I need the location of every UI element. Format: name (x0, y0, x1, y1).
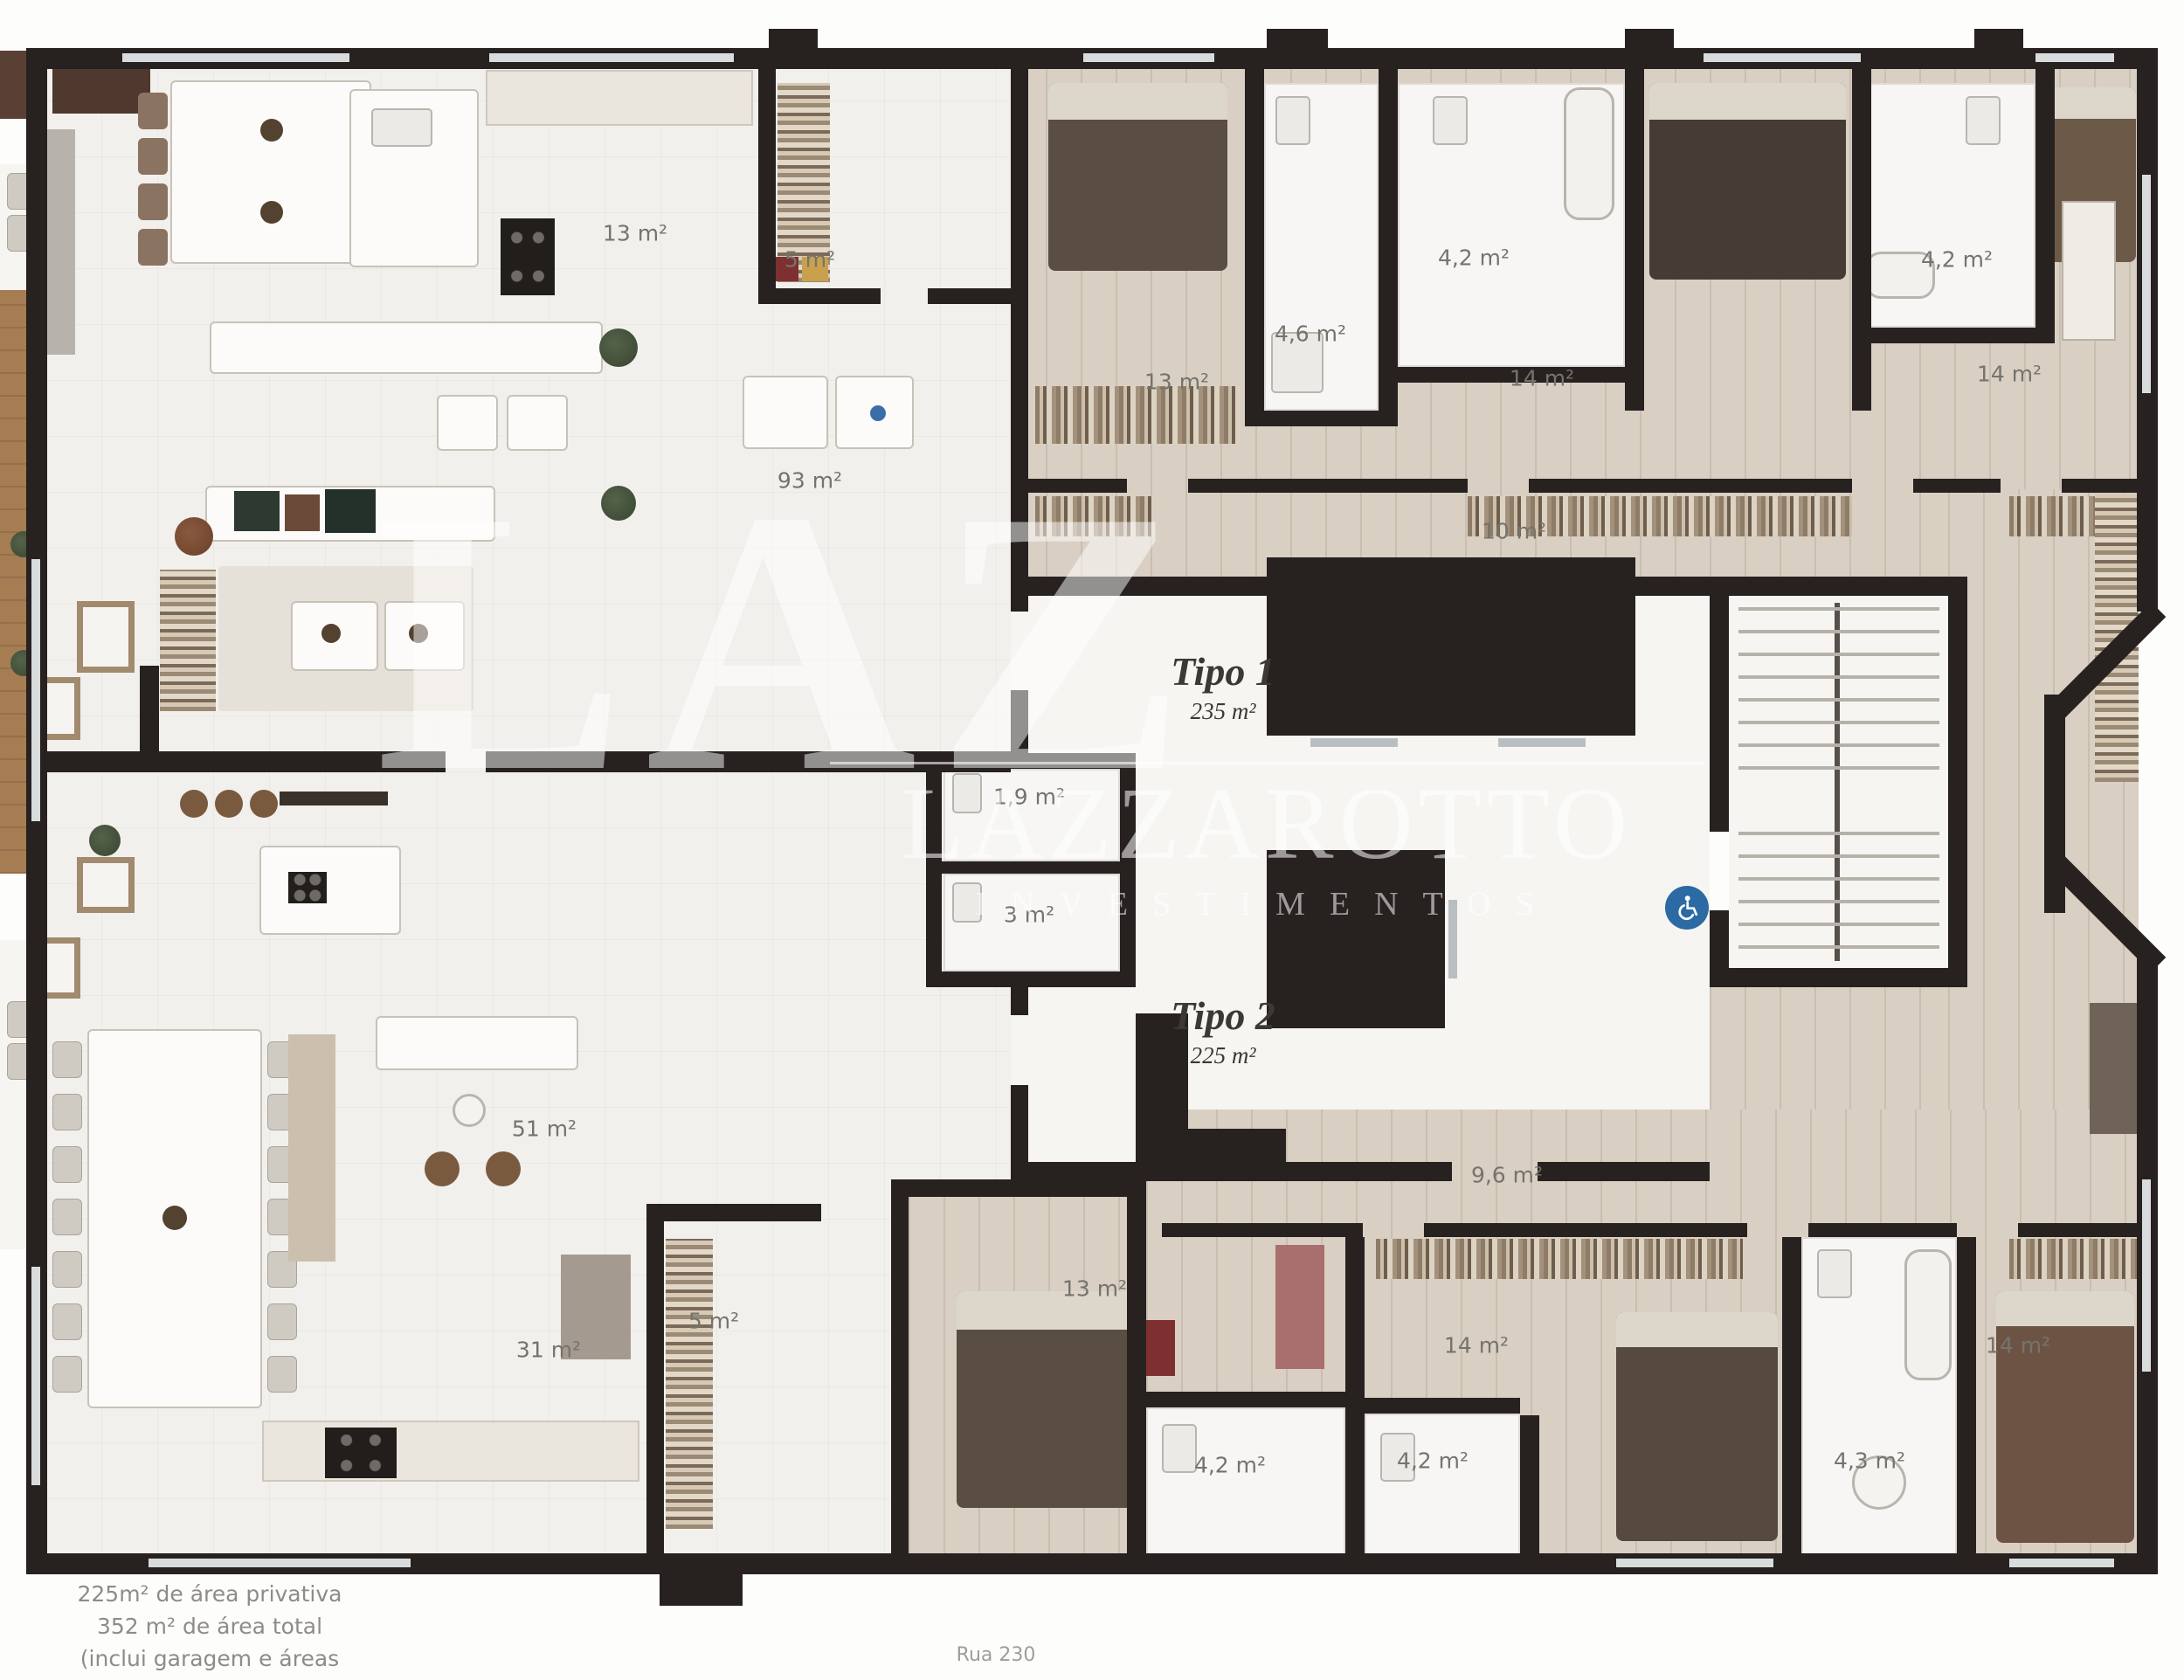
wall-segment (926, 753, 1136, 769)
wall-segment (2035, 67, 2055, 343)
wall-segment (1162, 1223, 1363, 1237)
wall-segment (1188, 479, 1468, 493)
stair-tread (1738, 675, 1939, 679)
room-area-label: 14 m² (1510, 366, 1574, 391)
wall-segment (1245, 67, 1264, 411)
wall-segment (1245, 411, 1398, 426)
wall-segment (1957, 1237, 1976, 1555)
bathtub (1904, 1249, 1952, 1380)
wall-segment (1127, 1197, 1146, 1555)
bath-fixture (1433, 96, 1468, 145)
bed-pillows (1048, 83, 1227, 120)
chair (52, 1199, 82, 1235)
room-area-label: 4,2 m² (1438, 245, 1510, 271)
bath-fixture (371, 108, 432, 147)
stair-tread (1738, 698, 1939, 702)
cabinet (0, 51, 26, 119)
wall-segment (1365, 1398, 1520, 1414)
coffee-table (507, 395, 568, 451)
chair (52, 1094, 82, 1130)
room-area-label: 51 m² (512, 1117, 577, 1142)
wall-segment (1529, 479, 1852, 493)
chair (267, 1303, 297, 1340)
chair (52, 1303, 82, 1340)
chair (267, 1356, 297, 1393)
unit-name: Tipo 1 (1118, 648, 1328, 695)
cabinet (288, 1034, 335, 1262)
wall-segment (1120, 753, 1136, 987)
cabinet (285, 494, 320, 531)
room-area-label: 9,6 m² (1471, 1163, 1543, 1188)
cooktop (501, 218, 555, 295)
wall-segment (660, 1573, 743, 1606)
area-summary: 225m² de área privativa 352 m² de área t… (35, 1578, 384, 1680)
wall-segment (140, 666, 159, 753)
bath-fixture (952, 773, 982, 813)
stair-tread (1738, 832, 1939, 835)
plant (175, 517, 213, 556)
wall-segment (891, 1179, 909, 1555)
decor-item (260, 201, 283, 224)
stair-tread (1738, 721, 1939, 724)
window (122, 53, 349, 62)
wall-segment (1345, 1237, 1365, 1555)
bed-pillows (2044, 87, 2136, 119)
window (1704, 53, 1861, 62)
chair (138, 229, 168, 266)
bed (1996, 1291, 2134, 1543)
table (170, 80, 371, 264)
wall-segment (1710, 596, 1729, 832)
stair-tread (1738, 877, 1939, 881)
shelf-unit (1035, 386, 1241, 444)
wall-segment (26, 751, 446, 772)
room-area-label: 13 m² (1144, 370, 1209, 395)
window (2142, 175, 2151, 393)
unit-label-tipo2: Tipo 2 225 m² (1118, 992, 1328, 1069)
wall-segment (1146, 1392, 1345, 1407)
wall-segment (646, 1204, 664, 1555)
window (31, 559, 40, 821)
wall-segment (942, 861, 1120, 874)
sofa (210, 321, 603, 374)
stair-tread (1738, 766, 1939, 770)
chair (138, 93, 168, 129)
wall-segment (1710, 968, 1967, 987)
room-area-label: 10 m² (1482, 519, 1546, 544)
wall-segment (1710, 577, 1967, 596)
bathtub (1564, 87, 1614, 220)
bath-fixture (1162, 1424, 1197, 1473)
armchair (77, 857, 135, 913)
wall-segment (1782, 1237, 1801, 1555)
cabinet (280, 792, 388, 805)
room-area-label: 31 m² (516, 1338, 581, 1363)
plant (89, 825, 121, 856)
stair-tread (1738, 945, 1939, 949)
decor-item (409, 624, 428, 643)
floor-plan: 13 m²5 m²93 m²13 m²4,6 m²4,2 m²14 m²4,2 … (0, 0, 2184, 1680)
wall-segment (1852, 328, 2055, 343)
wall-segment (1011, 67, 1028, 612)
bath-fixture (1817, 1249, 1852, 1298)
stool (250, 790, 278, 818)
kitchen-counter (262, 1421, 639, 1482)
plant (601, 486, 636, 521)
cabinet (2062, 201, 2116, 341)
wall-segment (1520, 1415, 1539, 1555)
bath-fixture (1275, 96, 1310, 145)
wall-segment (1913, 479, 2001, 493)
stair-tread (1738, 743, 1939, 747)
unit-label-tipo1: Tipo 1 235 m² (1118, 648, 1328, 725)
room-area-label: 4,6 m² (1275, 321, 1346, 347)
round-table (453, 1094, 486, 1127)
decor-item (260, 119, 283, 142)
kitchen-island (259, 846, 401, 935)
table (743, 376, 828, 449)
wall-segment (2018, 1223, 2139, 1237)
wall-segment (1974, 29, 2023, 50)
window (1616, 1559, 1773, 1567)
room-area-label: 4,3 m² (1834, 1448, 1905, 1474)
window (489, 53, 734, 62)
window (149, 1559, 411, 1567)
wall-segment (646, 1204, 821, 1221)
cabinet (2090, 1003, 2139, 1134)
chair (52, 1146, 82, 1183)
window (2142, 1179, 2151, 1372)
stool (425, 1151, 460, 1186)
wall-segment (758, 288, 881, 304)
wall-segment (1625, 29, 1674, 50)
room-area-label: 14 m² (1977, 362, 2042, 387)
window (2009, 1559, 2114, 1567)
stair-tread (1738, 607, 1939, 611)
wall-segment (1011, 987, 1028, 1015)
wall-segment (1948, 577, 1967, 987)
shelf-unit (1035, 496, 1153, 536)
unit-area: 235 m² (1118, 698, 1328, 725)
decor-item (162, 1206, 187, 1230)
coffee-table (437, 395, 498, 451)
wall-segment (1011, 577, 1268, 596)
wall-segment (758, 67, 776, 290)
stair-tread (1738, 900, 1939, 903)
tv-panel (45, 129, 75, 355)
stool (180, 790, 208, 818)
wardrobe-unit (666, 1239, 713, 1529)
room-area-label: 5 m² (688, 1309, 739, 1334)
chair (138, 183, 168, 220)
room-area-label: 14 m² (1444, 1333, 1509, 1359)
cabinet (325, 489, 376, 533)
stool (215, 790, 243, 818)
wall-segment (1011, 690, 1028, 753)
kitchen-counter (486, 70, 753, 126)
cooktop (288, 872, 327, 903)
stair-tread (1738, 923, 1939, 926)
street-label: Rua 230 (909, 1644, 1083, 1666)
wardrobe-unit (160, 570, 216, 711)
window (1083, 53, 1214, 62)
chair (138, 138, 168, 175)
stair-tread (1738, 653, 1939, 656)
stair-tread (1738, 854, 1939, 858)
wall-segment (1267, 29, 1328, 50)
wall-segment (1424, 1223, 1747, 1237)
elevator-door-sill (1310, 738, 1398, 747)
decor-item (870, 405, 886, 421)
area-private: 225m² de área privativa (35, 1578, 384, 1610)
room-area-label: 4,2 m² (1194, 1453, 1266, 1478)
window (31, 1267, 40, 1485)
room-area-label: 14 m² (1986, 1333, 2050, 1359)
unit-area: 225 m² (1118, 1042, 1328, 1069)
chair (52, 1041, 82, 1078)
shelf-unit (1376, 1239, 1743, 1279)
cabinet (1275, 1245, 1324, 1369)
stool (486, 1151, 521, 1186)
chair (52, 1356, 82, 1393)
unit-name: Tipo 2 (1118, 992, 1328, 1039)
stair-rail (1835, 603, 1840, 961)
wall-segment (2062, 479, 2139, 493)
wall-segment (1011, 1162, 1452, 1181)
wall-segment (1538, 1162, 1710, 1181)
cooktop (325, 1428, 397, 1478)
area-note: (inclui garagem e áreas comuns) (35, 1642, 384, 1680)
wall-segment (891, 1179, 1146, 1197)
room-area-label: 4,2 m² (1921, 247, 1993, 273)
sofa (376, 1016, 578, 1070)
room-area-label: 4,2 m² (1397, 1448, 1469, 1474)
wall-segment (1852, 67, 1871, 411)
wall-segment (1028, 479, 1127, 493)
decor-item (321, 624, 341, 643)
bath-fixture (1966, 96, 2001, 145)
bed-pillows (1616, 1312, 1778, 1347)
elevator-door-sill (1498, 738, 1586, 747)
bed-pillows (1996, 1291, 2134, 1326)
wall-segment (1632, 577, 1710, 596)
room-area-label: 13 m² (603, 221, 667, 246)
bath-fixture (952, 882, 982, 923)
room-area-label: 3 m² (1004, 902, 1054, 928)
wall-segment (1808, 1223, 1957, 1237)
area-total: 352 m² de área total (35, 1610, 384, 1642)
wall-segment (1379, 67, 1398, 411)
wall-segment (926, 753, 942, 987)
room-area-label: 5 m² (784, 247, 835, 273)
cabinet (234, 491, 280, 531)
chair (52, 1251, 82, 1288)
wall-segment (926, 971, 1136, 987)
wall-segment (769, 29, 818, 50)
wall-segment (2044, 695, 2065, 913)
plant (599, 328, 638, 367)
wall-segment (1625, 67, 1644, 411)
armchair (77, 601, 135, 673)
shelf-unit (2009, 1239, 2137, 1279)
room-area-label: 13 m² (1062, 1276, 1127, 1302)
accessibility-icon (1665, 886, 1709, 930)
room-area-label: 1,9 m² (993, 785, 1065, 810)
room-area-label: 93 m² (778, 468, 842, 494)
stair-tread (1738, 630, 1939, 633)
elevator-door-sill (1448, 900, 1457, 978)
window (2035, 53, 2114, 62)
bed-pillows (1649, 83, 1846, 120)
